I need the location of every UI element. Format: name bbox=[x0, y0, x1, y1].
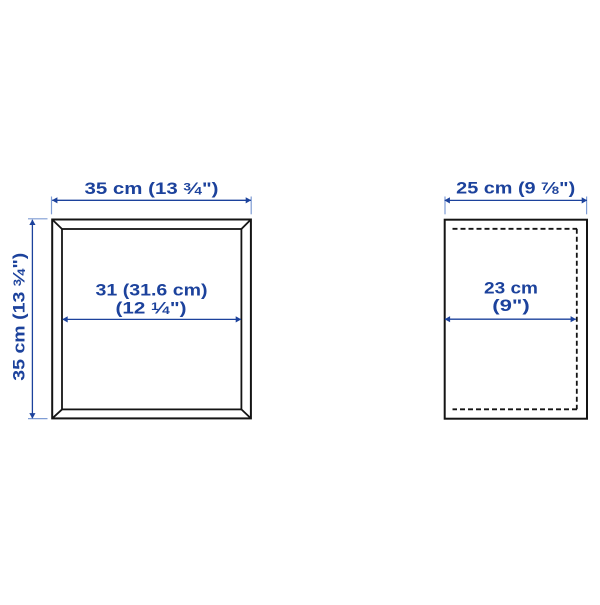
svg-text:23 cm: 23 cm bbox=[484, 280, 538, 298]
svg-text:(12 1⁄4"): (12 1⁄4") bbox=[116, 300, 187, 318]
svg-text:(9"): (9") bbox=[492, 297, 530, 315]
svg-text:31 (31.6 cm): 31 (31.6 cm) bbox=[96, 282, 208, 300]
